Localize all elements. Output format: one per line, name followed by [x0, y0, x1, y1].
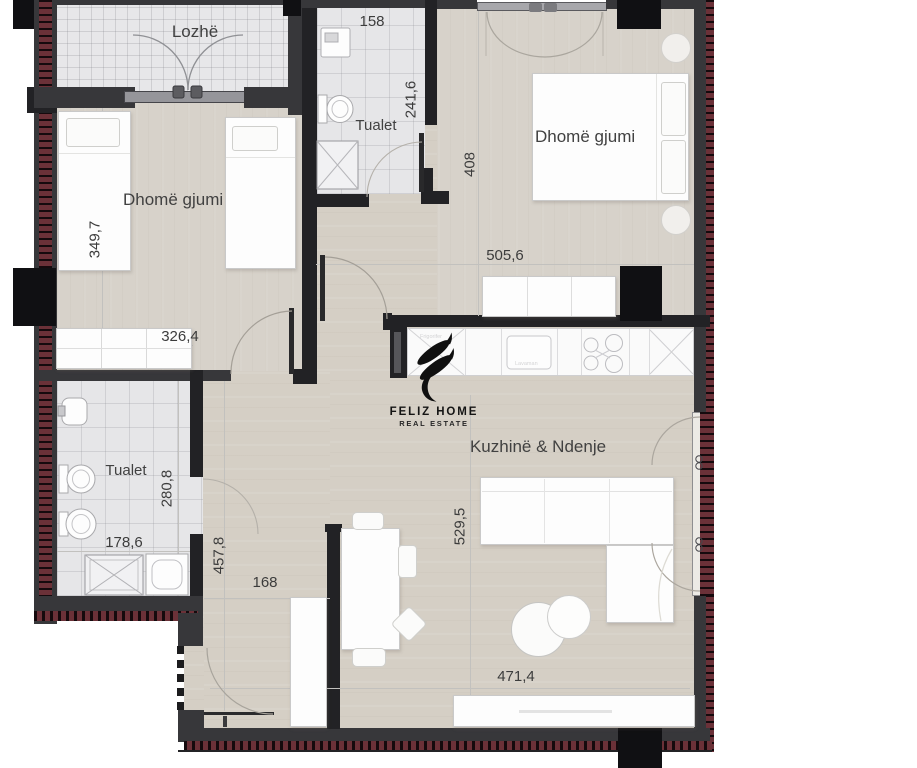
svg-text:Frigorifer: Frigorifer: [420, 334, 442, 340]
svg-text:Lavaman: Lavaman: [515, 361, 538, 367]
